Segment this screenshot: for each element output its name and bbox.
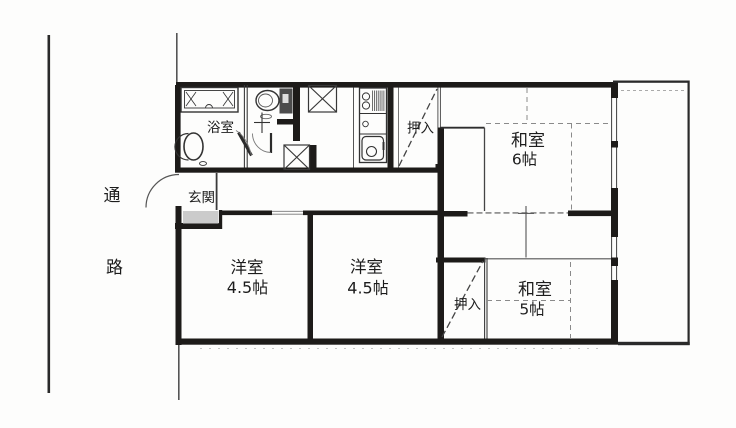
- wall-central-vertical: [438, 128, 445, 340]
- wall-bottom: [176, 339, 619, 345]
- balcony-top-edge: [613, 81, 690, 83]
- wall-kitchen-right: [388, 88, 394, 168]
- x-box-upper: [309, 86, 337, 113]
- floor-plan-drawing: 通 路 浴室 玄関 押入 押入 和室 6帖 和室 5帖 洋室 4.5帖 洋室 4…: [0, 0, 736, 428]
- wall-toilet-bottom: [277, 119, 300, 125]
- room-label-closet-lower: 押入: [454, 297, 481, 313]
- room-label-youshitsu-left-name: 洋室: [231, 258, 264, 277]
- wall-washitsu5-top: [436, 258, 486, 263]
- room-label-youshitsu-center-name: 洋室: [350, 258, 383, 277]
- wall-toilet-right: [293, 85, 300, 141]
- toilet-bowl-icon: [256, 91, 279, 111]
- upper-property-line: [176, 33, 178, 83]
- wall-stub-vestibule: [310, 145, 317, 173]
- room-label-washitsu6-size: 6帖: [512, 151, 537, 169]
- entrance-door-arc: [146, 175, 179, 208]
- balcony-right-edge: [688, 81, 690, 346]
- wall-western-divider: [308, 215, 314, 339]
- bathroom-door: [236, 131, 252, 156]
- floor-plan-page: 通 路 浴室 玄関 押入 押入 和室 6帖 和室 5帖 洋室 4.5帖 洋室 4…: [0, 0, 736, 428]
- vanity-icon: [181, 88, 238, 113]
- counter-mark: [363, 121, 369, 127]
- wall-right-seg1: [611, 82, 618, 98]
- wall-right-seg5: [611, 280, 618, 345]
- wall-left-upper: [175, 85, 181, 172]
- entrance-step: [183, 211, 219, 224]
- room-label-closet-upper: 押入: [407, 121, 434, 137]
- balcony-bottom-edge: [618, 342, 690, 345]
- lower-property-line: [178, 345, 180, 400]
- stove-icon: [362, 91, 384, 112]
- wall-washitsu6-bottom-left: [444, 211, 468, 217]
- room-label-youshitsu-center-size: 4.5帖: [347, 279, 388, 298]
- wall-corridor-bottom-left: [219, 211, 272, 216]
- kitchen-sink-icon: [362, 137, 384, 161]
- wall-right-seg3: [611, 188, 618, 237]
- wall-right-seg4: [611, 258, 618, 267]
- passage-label-char2: 路: [106, 258, 123, 278]
- wall-right-seg2: [611, 141, 618, 148]
- left-boundary-line: [48, 35, 51, 393]
- x-box-lower: [284, 145, 310, 170]
- room-label-youshitsu-left-size: 4.5帖: [227, 278, 268, 297]
- room-label-washitsu5-name: 和室: [518, 280, 552, 300]
- room-label-washitsu6-name: 和室: [511, 131, 545, 151]
- site-boundary-lines: [48, 33, 180, 400]
- room-label-washitsu5-size: 5帖: [519, 301, 544, 319]
- room-label-entrance: 玄関: [188, 189, 215, 206]
- wall-corridor-bottom-right: [303, 211, 444, 216]
- passage-label-char1: 通: [104, 186, 121, 206]
- wall-entrance-bottom: [175, 223, 222, 229]
- wall-top: [176, 82, 618, 88]
- wall-washitsu6-bottom-right: [568, 211, 611, 217]
- room-label-bathroom: 浴室: [207, 119, 234, 136]
- balcony: [613, 81, 690, 346]
- kitchen-unit: [360, 88, 387, 163]
